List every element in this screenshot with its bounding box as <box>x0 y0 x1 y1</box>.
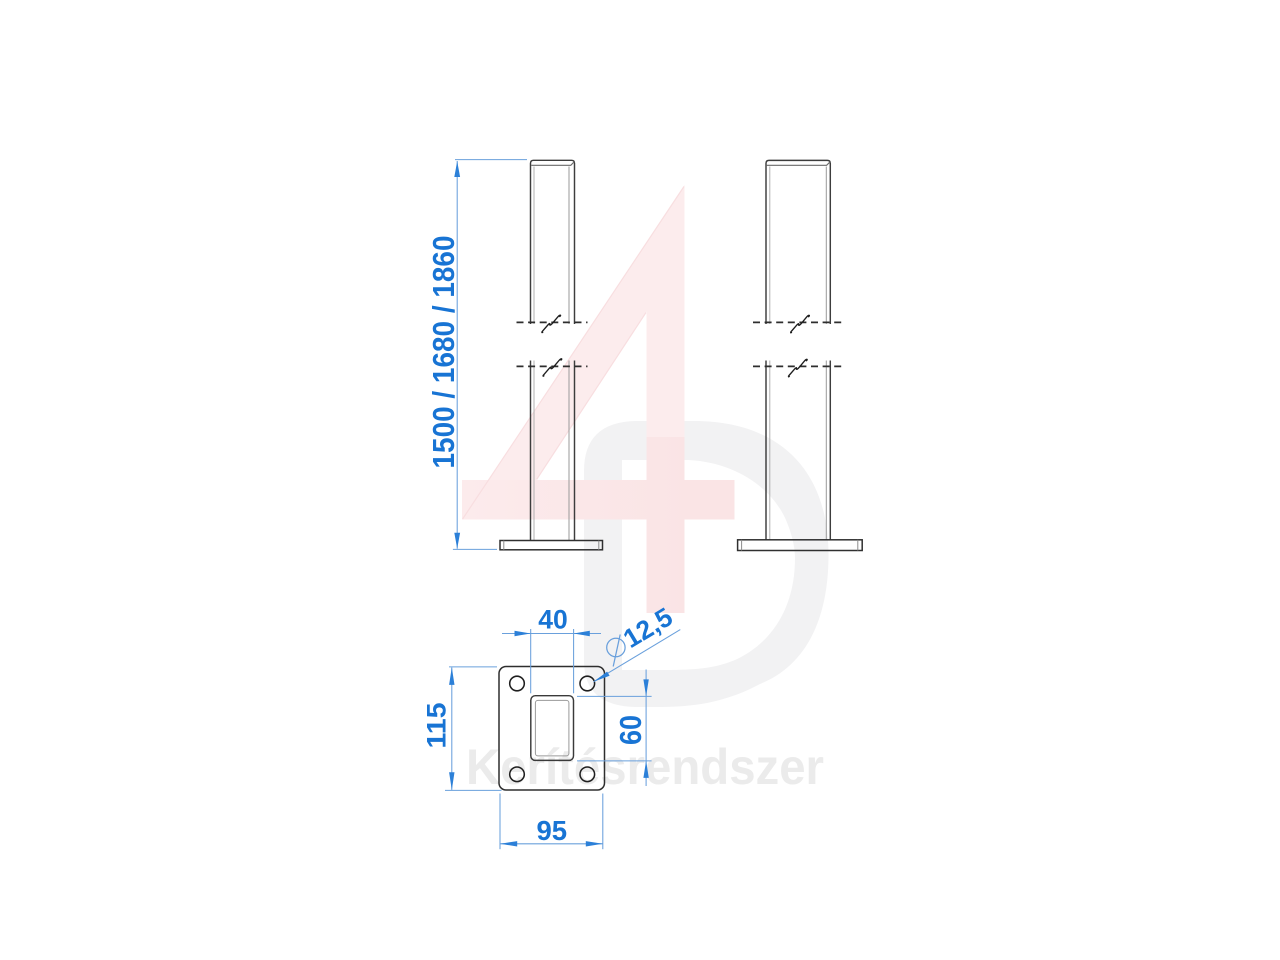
svg-text:60: 60 <box>613 715 648 745</box>
svg-text:1500 / 1680 / 1860: 1500 / 1680 / 1860 <box>426 236 461 469</box>
svg-text:40: 40 <box>538 605 567 635</box>
svg-text:95: 95 <box>537 815 568 846</box>
svg-text:115: 115 <box>421 703 451 749</box>
